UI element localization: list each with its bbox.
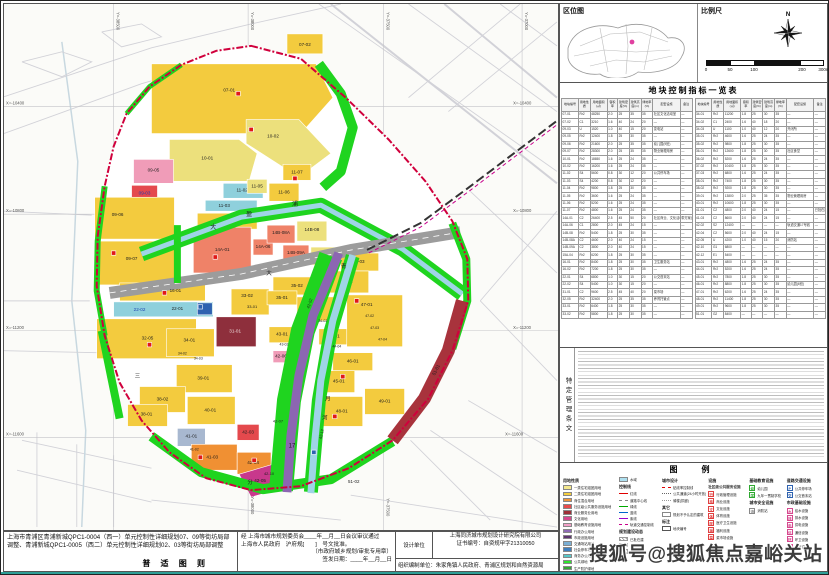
indicator-table-box: 地块控制指标一览表 地块编号用地性质用地面积(㎡)容积率建筑密度(%)建筑高度(… <box>560 83 827 348</box>
table-header: 备注 <box>814 99 826 112</box>
legend-label: 基础教育设施用地 <box>574 522 601 527</box>
scale-tick: 0 <box>705 67 708 72</box>
grid-label: Y=-38500 <box>116 12 121 31</box>
legend-item: 体体育设施 <box>708 513 747 519</box>
map-parcel-label: 14A-06 <box>256 244 271 249</box>
scale-tick: 300m <box>818 67 829 72</box>
legend-item: 蓝线 <box>619 510 660 515</box>
legend-label: 供电设施 <box>795 522 809 527</box>
grid-label: X=-10800 <box>6 208 25 213</box>
map-label: 42-07 <box>273 418 283 423</box>
table-row: 09-06Rr2216002.0253535幼儿园(9班)— <box>562 141 693 148</box>
table-row: 41-03C286002.0402415—— <box>695 215 826 222</box>
table-row: 46-01Rr288001.8253035幼儿园(6班)— <box>695 281 826 288</box>
plan-title: 上海市青浦区青浦新城QPC1-0004（西一）单元控制性详细规划07、09等街坊… <box>7 534 234 550</box>
location-map <box>560 16 692 78</box>
map-parcel-label: 38-01 <box>141 411 153 416</box>
table-row: 10-02Rr2162001.6252435—— <box>562 163 693 170</box>
map-parcel-label: 40-01 <box>204 407 216 412</box>
legend-section-title: 控制线 <box>619 484 660 490</box>
table-row: 48-01Rr2114001.8253035—— <box>695 296 826 303</box>
legend-label: 文化设施 <box>716 506 730 511</box>
scalebar-title: 比例尺 <box>698 4 827 16</box>
table-row: 14A-01C2264002.5455020社区商业、文化活动中心带方案出让 <box>562 215 693 222</box>
legend-swatch <box>563 504 572 509</box>
notes-box: 特定管理条文 <box>560 348 827 463</box>
legend-swatch <box>619 506 628 507</box>
legend-item: 生产防护绿地 <box>563 566 617 571</box>
table-row: 16-02Rr272001.8253035—— <box>562 267 693 274</box>
legend-swatch <box>563 535 572 540</box>
table-row: 11-04Rr298001.8253035—— <box>562 185 693 192</box>
map-parcel-label: 11-07 <box>291 169 303 174</box>
facility-marker-icon <box>162 291 166 295</box>
legend-item: 学九年一贯制学校 <box>749 492 784 498</box>
table-row: 22-02S454001.0301520—— <box>562 281 693 288</box>
legend-福利设施-icon: 福 <box>708 527 714 533</box>
planning-map: 07-0207-0110-0210-0109-0509-0309-0609-07… <box>4 4 558 530</box>
location-marker <box>630 40 635 45</box>
legend-公交首末站-icon: 交 <box>787 492 793 498</box>
map-parcel-label: 11-05 <box>251 183 263 188</box>
legend-section-title: 设施 <box>708 478 747 484</box>
map-label: 51-02 <box>348 479 360 484</box>
table-row: 15A-04Rr262001.8253035—— <box>562 252 693 259</box>
map-label: 22-01 <box>172 306 184 311</box>
table-row: 09-03U15201.0401520变电站— <box>562 126 693 133</box>
table-row: 36-02Rr252001.6252435—— <box>695 156 826 163</box>
legend-swatch <box>619 524 628 525</box>
legend-section-title: 用地性质 <box>563 478 617 484</box>
right-panel: 区位图 比例尺 N <box>559 3 828 572</box>
legend-item: 一类住宅组团用地 <box>563 485 617 490</box>
legend-消防站-icon: 消 <box>749 508 755 514</box>
table-row: 51-01G28400—————— <box>695 311 826 318</box>
legend-item: 社区级公共服务设施用地 <box>563 504 617 509</box>
grid-label: Y=-38000 <box>250 496 255 515</box>
legend-label: 文化用地 <box>574 516 588 521</box>
map-parcel-07-01 <box>151 64 332 134</box>
location-map-title: 区位图 <box>560 4 697 16</box>
indicator-table: 地块编号用地性质用地面积(㎡)容积率建筑密度(%)建筑高度(m)绿地率(%)配套… <box>561 98 693 319</box>
legend-label: 公交首末站 <box>795 493 812 498</box>
facility-marker-icon <box>355 299 359 303</box>
table-row: 11-03S442000.8301220—— <box>562 178 693 185</box>
legend-label: 体育设施 <box>716 513 730 518</box>
legend-label: 水域 <box>630 477 637 482</box>
map-label: 43-02 <box>280 343 289 347</box>
table-header: 绿地率(%) <box>641 99 653 112</box>
table-row: 39-01Rr2138002.0253535物业管理用房— <box>695 193 826 200</box>
legend-swatch <box>662 493 671 494</box>
legend-item: 排排水设施 <box>787 515 824 521</box>
legend-swatch <box>563 492 572 497</box>
legend-label: 商业服务业用地 <box>574 510 598 515</box>
notes-side-label: 特定管理条文 <box>560 348 575 462</box>
legend-swatch <box>563 547 572 552</box>
legend-swatch <box>563 554 572 559</box>
map-label: 月 <box>325 395 330 402</box>
legend-label: 福利设施 <box>716 528 730 533</box>
map-parcel-label: 49-01 <box>379 398 391 403</box>
legend-section-title: 标注 <box>662 519 706 525</box>
legend-label: 商业设施 <box>716 499 730 504</box>
map-parcel-label: 09-03 <box>139 190 151 195</box>
legend-行政管理设施-icon: 行 <box>708 491 714 497</box>
planning-sheet: 07-0207-0110-0210-0109-0509-0309-0609-07… <box>0 0 829 575</box>
legend-label: 医疗卫生设施 <box>716 520 736 525</box>
approval-line: 上海市人民政府 沪府规[ ] 号文批准。 <box>241 542 392 550</box>
legend-label: 行政管理设施 <box>716 492 736 497</box>
grid-label: X=-11200 <box>6 325 25 330</box>
plan-title-cell: 上海市青浦区青浦新城QPC1-0004（西一）单元控制性详细规划07、09等街坊… <box>4 532 238 571</box>
legend-label: 骑楼(拱廊) <box>673 498 689 503</box>
legend-swatch <box>563 498 572 503</box>
map-parcel-label: 11-02 <box>236 187 248 192</box>
legend-swatch <box>619 512 628 513</box>
facility-marker-icon <box>293 176 297 180</box>
legend-label: 贴线率控制线 <box>673 485 693 490</box>
location-row: 区位图 比例尺 N <box>560 4 827 83</box>
legend-幼儿园-icon: 幼 <box>749 485 755 491</box>
table-title: 地块控制指标一览表 <box>560 83 827 98</box>
legend-item: 交公交首末站 <box>787 492 824 498</box>
facility-marker-icon <box>341 374 345 378</box>
map-label: 大 <box>210 223 216 231</box>
grid-label: X=-11200 <box>513 325 532 330</box>
legend-label: 绿线 <box>630 504 637 509</box>
legend-label: 给水设施 <box>795 508 809 513</box>
legend-swatch <box>619 493 628 494</box>
table-header: 用地面积(㎡) <box>724 99 741 112</box>
scale-box: 比例尺 N <box>698 4 827 82</box>
legend-给水设施-icon: 水 <box>787 508 793 514</box>
location-map-box: 区位图 <box>560 4 698 82</box>
compass-rose-icon <box>771 18 805 48</box>
table-row: 36-01Rr2126001.8253035社区食堂— <box>695 148 826 155</box>
grid-label: Y=-38000 <box>250 12 255 31</box>
table-row: 14B-08AC246002.0402415—— <box>562 237 693 244</box>
map-label: 大 <box>266 269 272 277</box>
facility-marker-icon <box>249 127 253 131</box>
map-label: 33-01 <box>247 304 258 309</box>
map-parcel-label: 35-01 <box>276 295 288 300</box>
map-label: 17 <box>289 443 296 449</box>
legend-swatch <box>619 500 628 501</box>
legend-swatch <box>619 477 628 482</box>
map-parcel-label: 47-01 <box>361 302 373 307</box>
legend-label: 社区级公共服务设施用地 <box>574 504 611 509</box>
organizer: 组织编制单位：朱家角镇人民政府、青浦区规划和自然资源局 <box>396 559 558 571</box>
table-row: 38-01Rr274001.8253035—— <box>695 178 826 185</box>
table-header: 建筑高度(m) <box>629 99 641 112</box>
map-label: 34-02 <box>178 352 187 356</box>
scale-ticks: 050100200300m <box>706 66 824 74</box>
legend-label: 紫线 <box>630 516 637 521</box>
sheet-type: 普 适 图 则 <box>142 558 209 569</box>
map-parcel-label: 07-02 <box>299 42 311 47</box>
legend-swatch <box>563 529 572 534</box>
legend-label: 蓝线 <box>630 510 637 515</box>
legend-title: 图 例 <box>560 463 827 476</box>
table-row: 47-01Rr262001.6252435—— <box>695 289 826 296</box>
legend-label: 公共停车场 <box>795 486 812 491</box>
legend-item: 信通信设施 <box>787 529 824 535</box>
grid-label: X=-11600 <box>6 431 25 436</box>
table-row: 14B-08Rr254001.8253035—— <box>562 230 693 237</box>
facility-marker-icon <box>333 414 337 418</box>
map-parcel-label: 31-01 <box>229 329 241 334</box>
legend-item: 福福利设施 <box>708 527 747 533</box>
map-parcel-label: 14B-08 <box>304 227 319 232</box>
map-label: 16-01 <box>170 288 182 293</box>
approval-line: （市政府城乡规划/审批专用章） <box>241 549 392 557</box>
table-row: 42-04C256002.0402415—— <box>695 230 826 237</box>
table-row: 43-01Rr248001.6252435—— <box>695 259 826 266</box>
legend-item: 商商业设施 <box>708 498 747 504</box>
legend-item: 基础教育设施用地 <box>563 522 617 527</box>
legend-item: 幼幼儿园 <box>749 485 784 491</box>
table-row: 33-02Rr258001.8253035—— <box>562 311 693 318</box>
table-row: 14B-09AC238002.0402415—— <box>562 245 693 252</box>
designer-cell: 设计单位 上海同济城市规划设计研究院有限公司 证书编号：自资规甲字2131005… <box>396 532 558 571</box>
table-row: 37-03Rr268001.6252435—— <box>695 171 826 178</box>
map-parcel-label: 11-06 <box>278 189 290 194</box>
table-row: 41-01C248002.0402415—已批在建 <box>695 208 826 215</box>
table-row: 49-01Rr296001.8253035—— <box>695 304 826 311</box>
map-parcel-label: 46-01 <box>347 359 359 364</box>
legend-item: 道路中心线 <box>619 498 660 503</box>
indicator-table-right: 地块编号用地性质用地面积(㎡)容积率建筑密度(%)建筑高度(m)绿地率(%)配套… <box>694 98 828 319</box>
facility-marker-icon <box>312 450 316 454</box>
map-label: 盈 <box>246 211 252 218</box>
legend-label: 规划不予认定的建筑 <box>673 512 704 517</box>
legend-swatch <box>662 500 671 501</box>
grid-label: X=-11600 <box>505 431 524 436</box>
table-row: 32-05Rr2324002.0253535养育托管点— <box>562 296 693 303</box>
table-row: 42-05U42001.0401520消防站— <box>695 237 826 244</box>
table-header: 建筑高度(m) <box>763 99 775 112</box>
map-panel: 07-0207-0110-0210-0109-0509-0309-0609-07… <box>3 3 559 531</box>
legend-label: 幼儿园 <box>757 486 767 491</box>
legend-label: 商住混合用地 <box>574 498 594 503</box>
legend-九年一贯制学校-icon: 学 <box>749 492 755 498</box>
legend-label: 生产防护绿地 <box>574 566 594 571</box>
legend-label: 红线 <box>630 491 637 496</box>
facility-marker-icon <box>198 305 202 309</box>
legend-section-title: 城市安全设施 <box>749 500 784 506</box>
map-parcel-label: 07-01 <box>223 88 235 93</box>
map-parcel-label: 41-01 <box>185 433 197 438</box>
map-parcel-label: 32-05 <box>142 336 154 341</box>
table-header: 建筑密度(%) <box>751 99 763 112</box>
table-row: 09-05Rr2124001.8253035—— <box>562 134 693 141</box>
table-row: 09-07Rr2283002.0253535物业管理用房— <box>562 148 693 155</box>
legend-体育设施-icon: 体 <box>708 513 714 519</box>
legend-section-title: 基础教育设施 <box>749 478 784 484</box>
legend-section-title: 市政基础设施 <box>787 500 824 506</box>
table-row: 45-01Rr278001.8253035—— <box>695 274 826 281</box>
legend-swatch <box>563 560 572 565</box>
map-parcel-label: 35-02 <box>291 283 303 288</box>
legend-item: 商住混合用地 <box>563 498 617 503</box>
legend-swatch <box>563 516 572 521</box>
table-row: 31-01C296002.5454020菜市场— <box>562 289 693 296</box>
designer-cert: 证书编号：自资规甲字21310050 <box>435 541 556 549</box>
legend-swatch <box>662 487 671 488</box>
map-parcel-label: 09-07 <box>126 256 138 261</box>
legend-label: 消防站 <box>757 508 767 513</box>
map-parcel-label: 41-03 <box>206 454 218 459</box>
scale-tick: 200 <box>798 67 806 72</box>
legend-label: 九年一贯制学校 <box>757 493 781 498</box>
table-header: 用地性质 <box>578 99 590 112</box>
grid-label: Y=-37000 <box>524 12 529 31</box>
legend-item: 水给水设施 <box>787 508 824 514</box>
legend-item: 文文化设施 <box>708 506 747 512</box>
map-parcel-label: 45-01 <box>333 379 345 384</box>
legend-排水设施-icon: 排 <box>787 515 793 521</box>
indicator-table-left: 地块编号用地性质用地面积(㎡)容积率建筑密度(%)建筑高度(m)绿地率(%)配套… <box>560 98 694 319</box>
scale-tick: 50 <box>727 67 732 72</box>
designer-value: 上海同济城市规划设计研究院有限公司 证书编号：自资规甲字21310050 <box>433 532 558 558</box>
map-parcel-label: 42-03 <box>242 429 254 434</box>
legend-item: 贴线率控制线 <box>662 485 706 490</box>
legend-label: 二类住宅组团用地 <box>574 491 601 496</box>
map-parcel-label: 22-02 <box>134 307 146 312</box>
table-row: 22-01S468001.0301520公交首末站— <box>562 274 693 281</box>
grid-label: X=-10400 <box>6 101 25 106</box>
legend-swatch <box>563 566 572 571</box>
map-parcel-label: 10-01 <box>201 155 213 160</box>
legend-swatch <box>662 512 671 517</box>
legend-item: 红线 <box>619 491 660 496</box>
legend-item: 轨道交通控制线 <box>619 522 660 527</box>
facility-marker-icon <box>198 455 202 459</box>
map-parcel-label: 14B-09A <box>287 250 306 255</box>
table-header: 用地性质 <box>712 99 724 112</box>
legend-item: 电供电设施 <box>787 522 824 528</box>
facility-marker-icon <box>111 251 115 255</box>
legend-item: 水域 <box>619 477 660 482</box>
legend-公共停车场-icon: P <box>787 485 793 491</box>
legend-供电设施-icon: 电 <box>787 522 793 528</box>
map-label: 河 <box>322 413 328 421</box>
legend-section-title: 城市设计 <box>662 478 706 484</box>
table-row: 34-02C124001.6401820—— <box>695 119 826 126</box>
map-label: 36-02 <box>318 319 327 323</box>
map-parcel-label: 14B-08A <box>272 230 291 235</box>
watermark: 搜狐号@搜狐焦点嘉峪关站 <box>589 539 823 566</box>
map-parcel-10-01 <box>169 139 257 181</box>
legend-item: 绿线 <box>619 504 660 509</box>
legend-item: 骑楼(拱廊) <box>662 498 706 503</box>
legend-item: 商业服务业用地 <box>563 510 617 515</box>
table-header: 配套设施 <box>653 99 680 112</box>
map-label: 47-04 <box>378 338 387 342</box>
legend-label: 道路中心线 <box>630 498 647 503</box>
legend-swatch <box>563 485 572 490</box>
legend-通信设施-icon: 信 <box>787 529 793 535</box>
legend-item: 公共通道(24小时开放) <box>662 491 706 496</box>
legend-商业设施-icon: 商 <box>708 498 714 504</box>
title-block: 上海市青浦区青浦新城QPC1-0004（西一）单元控制性详细规划07、09等街坊… <box>3 531 559 572</box>
table-row: 37-02Rr2104001.8253035—— <box>695 163 826 170</box>
map-parcel-label: 38-02 <box>157 396 169 401</box>
legend-item: 行行政管理设施 <box>708 491 747 497</box>
table-row: 34-03U11001.0401220开闭所— <box>695 126 826 133</box>
north-arrow: N <box>771 12 805 53</box>
table-header: 地块编号 <box>695 99 712 112</box>
designer-label: 设计单位 <box>396 532 433 558</box>
table-row: 42-02S212400————轨道交通17号线— <box>695 222 826 229</box>
legend-item: 医医疗卫生设施 <box>708 520 747 526</box>
table-row: 42-10G16800—————— <box>695 245 826 252</box>
table-row: 33-01Rr264001.8253035—— <box>562 304 693 311</box>
table-row: 11-02S456000.8301220公共停车场— <box>562 171 693 178</box>
table-header: 容积率 <box>607 99 617 112</box>
map-parcel-label: 34-01 <box>183 338 195 343</box>
map-parcel-label: 10-02 <box>267 133 279 138</box>
map-parcel-label: 09-06 <box>112 212 124 217</box>
facility-marker-icon <box>252 458 256 462</box>
table-row: 11-07Rr248001.6252435—— <box>562 208 693 215</box>
map-parcel-label: 14A-01 <box>215 247 230 252</box>
map-label: 浦 <box>292 200 298 208</box>
map-label: 44-04 <box>332 345 341 349</box>
table-row: 14A-06C128002.0452415—— <box>562 222 693 229</box>
approval-line: 经 上海市城市规划委员会____年__月__日会议审议通过 <box>241 534 392 542</box>
table-header: 建筑密度(%) <box>618 99 630 112</box>
map-parcel-label: 11-03 <box>219 203 231 208</box>
scale-bar: 050100200300m <box>706 60 824 74</box>
map-label: 41-02 <box>190 447 199 451</box>
table-header: 容积率 <box>741 99 751 112</box>
table-header: 地块编号 <box>562 99 579 112</box>
table-header: 配套设施 <box>786 99 813 112</box>
map-label: 34-03 <box>194 357 203 361</box>
table-header: 备注 <box>680 99 692 112</box>
legend-swatch <box>563 541 572 546</box>
table-row: 34-01Rr2112001.8253035—— <box>695 112 826 119</box>
grid-label: X=-10800 <box>513 208 532 213</box>
map-parcel-label: 48-01 <box>336 408 348 413</box>
table-row: 35-01Rr246001.6252435—— <box>695 134 826 141</box>
approval-cell: 经 上海市城市规划委员会____年__月__日会议审议通过 上海市人民政府 沪府… <box>238 532 396 571</box>
map-parcel-label: 09-05 <box>148 167 160 172</box>
legend-section-title: 规划建设动态 <box>619 529 660 535</box>
legend-swatch <box>563 510 572 515</box>
legend-item: 行政办公用地 <box>563 529 617 534</box>
indicator-table: 地块编号用地性质用地面积(㎡)容积率建筑密度(%)建筑高度(m)绿地率(%)配套… <box>695 98 827 319</box>
map-label: 三 <box>135 373 141 380</box>
legend-文化设施-icon: 文 <box>708 506 714 512</box>
legend-label: 通信设施 <box>795 530 809 535</box>
legend-item: 文化用地 <box>563 516 617 521</box>
map-parcel-label: 43-01 <box>276 332 288 337</box>
legend-item: 紫线 <box>619 516 660 521</box>
legend-swatch <box>662 526 671 531</box>
legend-item: 二类住宅组团用地 <box>563 491 617 496</box>
map-label: 青 <box>341 262 347 270</box>
legend-item: 规划不予认定的建筑 <box>662 512 706 517</box>
legend-swatch <box>619 518 628 519</box>
legend-section-title: 其它 <box>662 505 706 511</box>
map-parcel-label: 39-01 <box>197 376 209 381</box>
table-row: 38-02Rr292001.8253035—— <box>695 185 826 192</box>
grid-label: Y=-37500 <box>386 12 391 31</box>
table-row: 10-01Rr2186501.6252435—— <box>562 156 693 163</box>
